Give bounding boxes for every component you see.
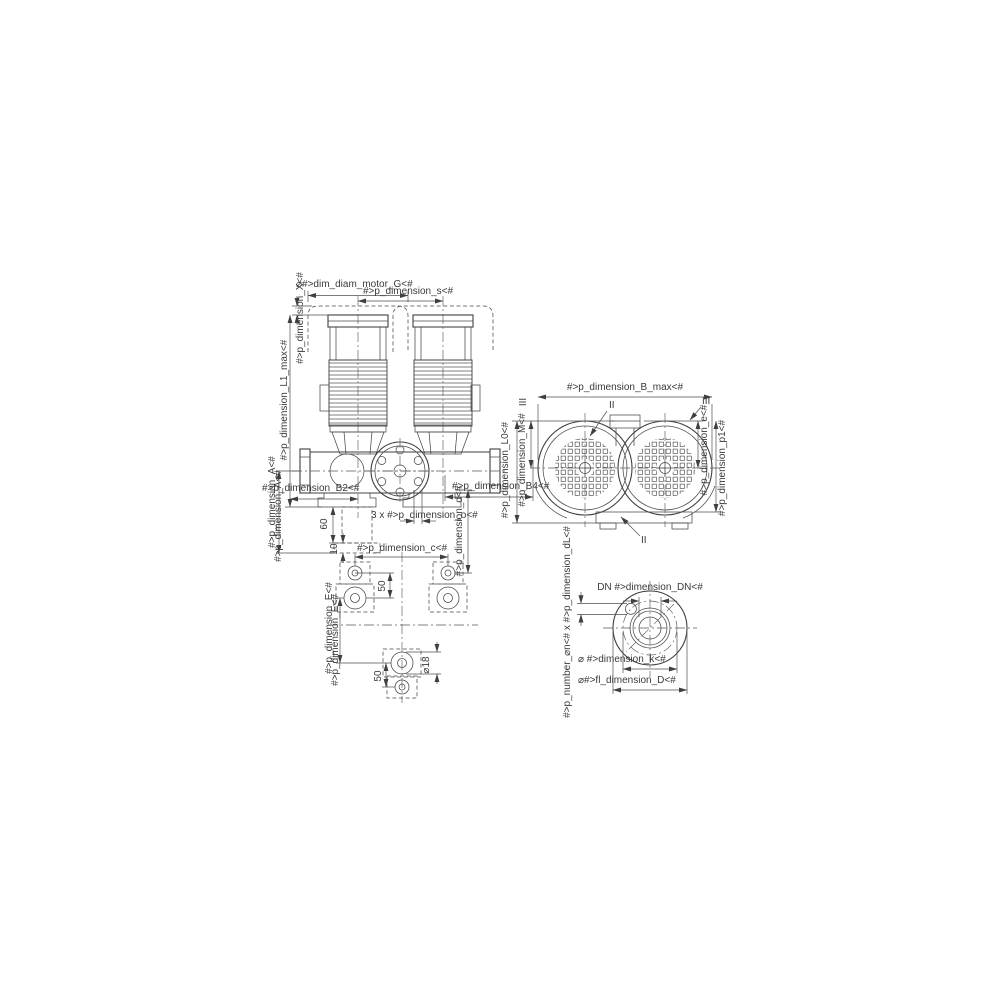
anchor-group-top-left xyxy=(336,562,374,612)
dim-e-label: #>p_dimension_e<# xyxy=(699,404,710,495)
dim-diam18-label: ⌀18 xyxy=(421,656,432,674)
dim-s-label: #>p_dimension_s<# xyxy=(363,286,454,297)
dim-50-bottom-label: 50 xyxy=(373,670,384,682)
dim-d-flange-label: ⌀#>fl_dimension_D<# xyxy=(578,675,676,686)
section-marker-ii-top: II xyxy=(609,400,615,411)
dim-50-top-label: 50 xyxy=(377,580,388,592)
motor-1 xyxy=(320,315,388,454)
dim-d-label: #>p_dimension_d<# xyxy=(454,485,465,576)
section-marker-ii-bottom: II xyxy=(641,535,647,546)
pump-foot-right xyxy=(403,493,461,507)
dim-60-label: 60 xyxy=(319,518,330,530)
section-marker-iii-left: III xyxy=(518,398,529,406)
dim-b2-label: #>p_dimension_B2<# xyxy=(262,483,360,494)
dim-p1-label: #>p_dimension_p1<# xyxy=(717,419,728,516)
dim-bmax-label: #>p_dimension_B_max<# xyxy=(567,382,684,393)
bolt-hole xyxy=(625,603,636,614)
flange-view: DN #>dimension_DN<# ⌀ #>dimension_k<# ⌀#… xyxy=(562,526,703,718)
dim-k-label: ⌀ #>dimension_k<# xyxy=(578,654,666,665)
dim-l1max-label: #>p_dimension_L1_max<# xyxy=(279,339,290,460)
motor1-terminal-box xyxy=(320,385,329,411)
dim-m-label: #>p_dimension_M<# xyxy=(517,413,528,507)
motor-end-view: #>p_dimension_B_max<# II III III #>p_dim… xyxy=(500,382,728,546)
dim-e-found-label-2: #>p_dimension_E<# xyxy=(330,594,341,686)
dim-dn-label: DN #>dimension_DN<# xyxy=(597,582,703,593)
foundation-block xyxy=(342,507,372,543)
pump-foot-left xyxy=(318,493,376,507)
dim-l0-label: #>p_dimension_L0<# xyxy=(500,421,511,518)
dim-bolt-holes-label: #>p_number_⌀n<# x #>p_dimension_dL<# xyxy=(562,526,573,718)
flange-view-dimensions: DN #>dimension_DN<# ⌀ #>dimension_k<# ⌀#… xyxy=(562,526,703,718)
foundation-view-dimensions: #>p_dimension_c<# 50 #>p_dimension_E<# #… xyxy=(324,543,448,687)
dim-c-label: #>p_dimension_c<# xyxy=(357,543,448,554)
motor-2 xyxy=(413,315,480,454)
technical-drawing: ⌀#>dim_diam_motor_G<# #>p_dimension_s<# … xyxy=(0,0,1000,1000)
pipe-flange-top xyxy=(610,415,640,428)
drawing-sheet: ⌀#>dim_diam_motor_G<# #>p_dimension_s<# … xyxy=(0,0,1000,1000)
